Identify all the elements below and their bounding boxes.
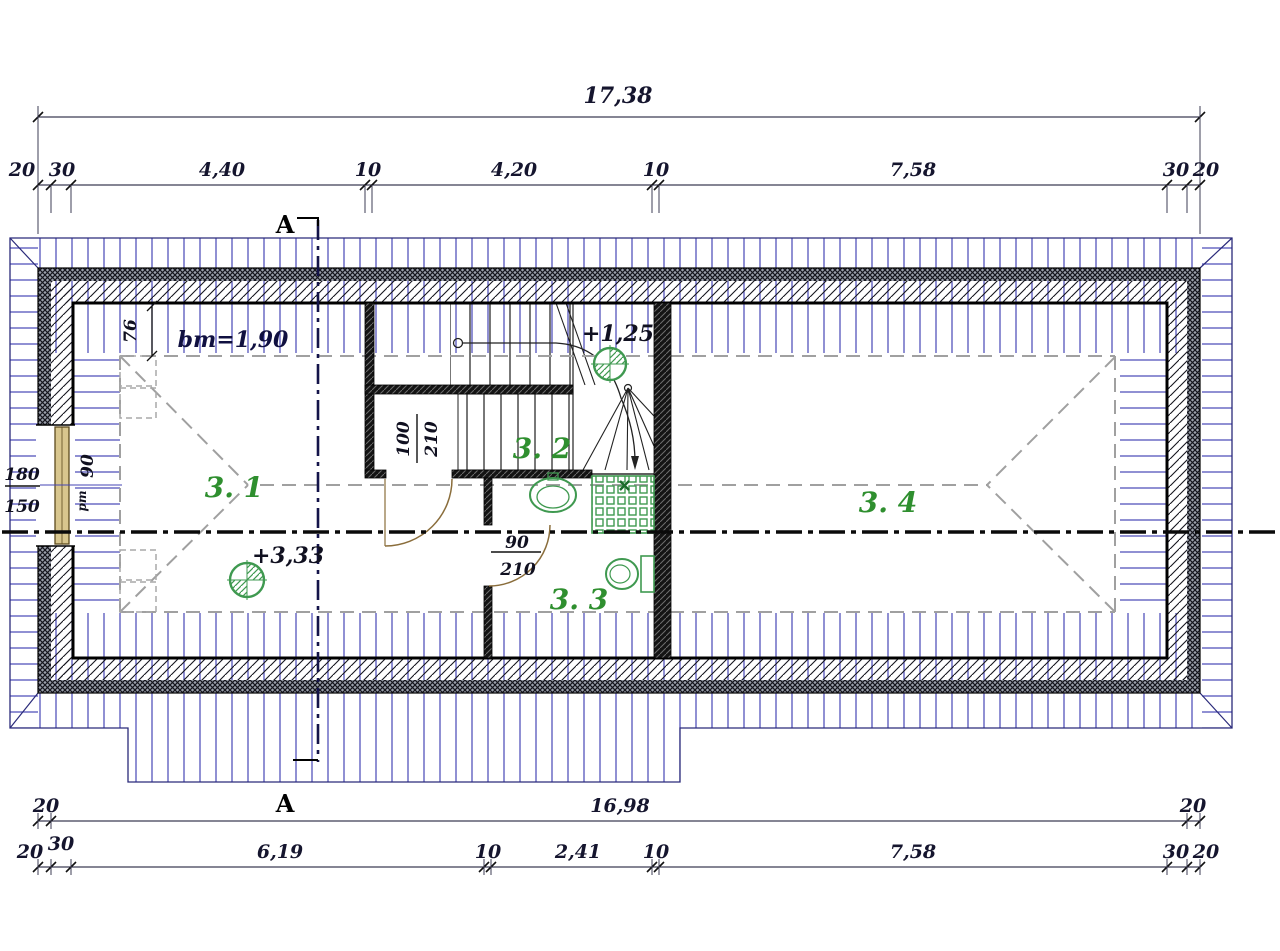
dim-bot2-8: 20 (1192, 841, 1219, 863)
bath-door-height-label: 210 (499, 560, 536, 580)
dim-bot2-6: 7,58 (890, 841, 936, 863)
dim-top-2: 4,40 (199, 159, 245, 181)
dim-bot2-1: 30 (48, 833, 74, 855)
room-label-3-4: 3. 4 (859, 486, 917, 519)
dim-bot1-2: 20 (1179, 795, 1206, 817)
winder-treads (583, 388, 654, 470)
dim-bot2-3: 10 (475, 841, 501, 863)
floor-plan-canvas: 17,38 20 30 4,40 10 4,20 10 7,58 30 20 A… (0, 0, 1280, 951)
headroom-band-width-label: 76 (121, 319, 141, 343)
window-height-label: 150 (4, 497, 40, 517)
section-label-top: A (275, 210, 295, 239)
dim-bot2-2: 6,19 (257, 841, 303, 863)
bath-door-width-label: 90 (505, 533, 529, 553)
dim-top-7: 30 (1163, 159, 1189, 181)
dim-bot2-5: 10 (643, 841, 669, 863)
shower-tray (592, 476, 654, 533)
dim-bot2-7: 30 (1163, 841, 1189, 863)
room-label-3-3: 3. 3 (550, 583, 608, 616)
toilet (606, 556, 654, 592)
walkline-arrow (631, 456, 639, 470)
dim-top-6: 7,58 (890, 159, 936, 181)
parapet-prefix-label: pm (75, 490, 89, 511)
stair-door-width-label: 100 (394, 421, 414, 457)
washbasin (530, 473, 576, 512)
dim-bot1-0: 20 (32, 795, 59, 817)
stair-door-arc (385, 479, 452, 546)
stair-door-height-label: 210 (422, 421, 442, 458)
dim-top-1: 30 (49, 159, 75, 181)
level-landing-label: +1,25 (582, 321, 654, 347)
dim-bot1-1: 16,98 (590, 795, 650, 817)
dim-top-8: 20 (1192, 159, 1219, 181)
room-label-3-1: 3. 1 (205, 471, 263, 504)
dim-top-4: 4,20 (491, 159, 537, 181)
dim-top-3: 10 (355, 159, 381, 181)
min-headroom-label: bm=1,90 (178, 327, 289, 353)
roof-window-projections (120, 356, 156, 612)
dim-top-5: 10 (643, 159, 669, 181)
dim-top-total: 17,38 (584, 83, 653, 109)
dim-top-0: 20 (8, 159, 35, 181)
dim-bot2-4: 2,41 (554, 841, 601, 863)
room-label-3-2: 3. 2 (513, 432, 571, 465)
dim-bot2-0: 20 (16, 841, 43, 863)
section-label-bottom: A (275, 789, 295, 818)
parapet-height-label: 90 (78, 454, 98, 478)
bath-fixtures (530, 473, 654, 592)
window-width-label: 180 (4, 465, 40, 485)
level-attic-label: +3,33 (252, 543, 324, 569)
